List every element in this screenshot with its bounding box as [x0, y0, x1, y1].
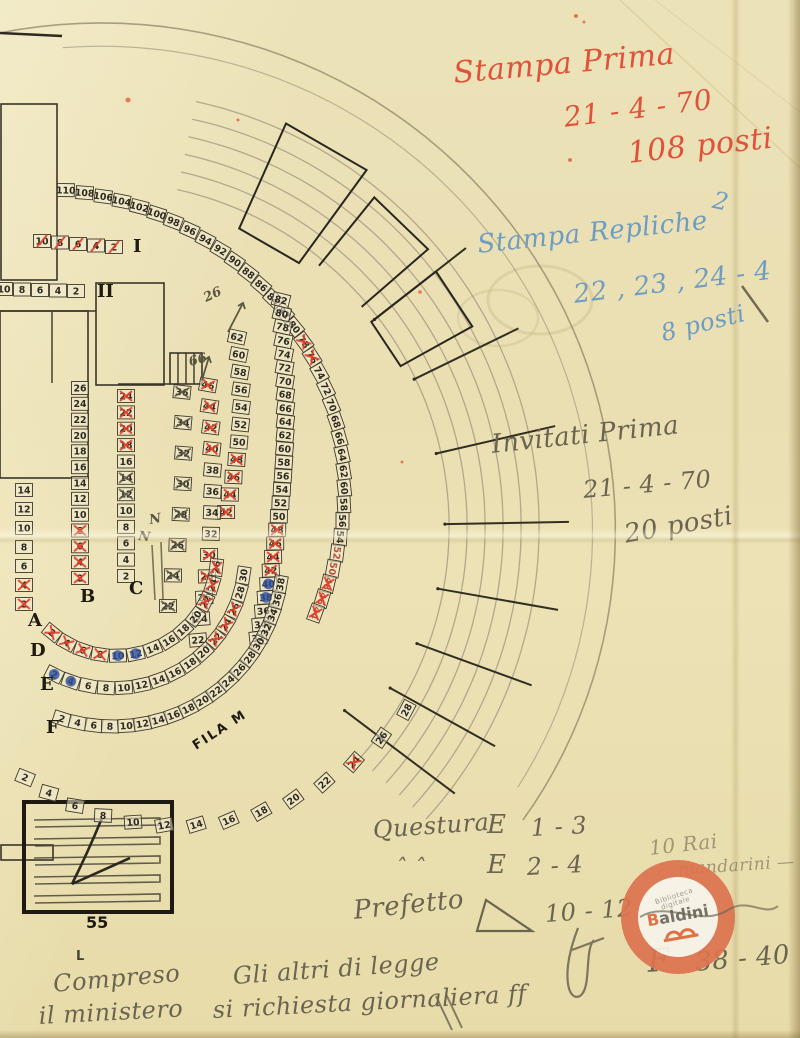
seat: 26	[72, 382, 89, 395]
divider-end-dot	[413, 378, 416, 381]
row-label: I	[133, 236, 141, 257]
seat: 46	[225, 470, 243, 484]
seat: 8	[97, 681, 115, 695]
gallery-divider-line	[445, 522, 569, 524]
seat: 4	[61, 672, 81, 690]
svg-text:68: 68	[278, 389, 293, 402]
svg-text:64: 64	[278, 416, 293, 429]
seat: 6	[79, 678, 98, 694]
stage-bar	[34, 894, 160, 903]
scanned-seating-plan-document: 55L1101081061041021009896949290888684828…	[0, 0, 800, 1038]
seat: 14	[16, 484, 33, 497]
divider-end-dot	[343, 709, 346, 712]
svg-text:34: 34	[205, 508, 219, 520]
seat: 20	[283, 789, 304, 810]
gallery-section-outline	[239, 124, 366, 264]
row-label: C	[129, 578, 143, 599]
seat: 48	[228, 452, 246, 466]
seat: 44	[200, 399, 219, 414]
seat: 18	[72, 445, 89, 458]
crease-line	[620, 0, 800, 168]
svg-text:10: 10	[0, 284, 11, 295]
seat: 16	[72, 461, 89, 474]
ink-speck	[418, 290, 422, 294]
seat: 8	[14, 283, 31, 296]
seat: 14	[72, 477, 89, 490]
svg-text:12: 12	[135, 718, 150, 731]
svg-text:14: 14	[17, 485, 31, 496]
seat: 54	[232, 399, 250, 414]
svg-text:12: 12	[73, 494, 86, 505]
svg-text:10: 10	[73, 510, 87, 521]
seat: 20	[72, 429, 89, 442]
crease-line	[655, 0, 800, 112]
pencil-scribble-lines	[152, 542, 163, 600]
seat: 22	[160, 600, 177, 613]
seat: 4	[16, 579, 33, 592]
seat: 30	[174, 477, 192, 491]
svg-text:72: 72	[277, 362, 292, 375]
svg-text:58: 58	[233, 366, 248, 379]
svg-text:38: 38	[275, 577, 288, 592]
seat: 52	[272, 496, 289, 510]
pencil-arrow	[228, 303, 243, 332]
seat: 24	[72, 397, 89, 410]
svg-text:52: 52	[330, 546, 342, 560]
seat: 62	[227, 329, 246, 345]
row-label: II	[97, 281, 114, 302]
seat: 62	[336, 462, 352, 481]
seat: 58	[337, 496, 351, 514]
seat: 8	[91, 647, 110, 662]
svg-text:108: 108	[74, 187, 94, 199]
seat: 4	[88, 239, 105, 252]
svg-text:10: 10	[117, 683, 131, 695]
svg-text:60: 60	[278, 444, 292, 456]
seat: 44	[307, 603, 325, 623]
seat: 10	[117, 719, 135, 733]
svg-text:14: 14	[73, 478, 87, 489]
stage-number: 55	[86, 913, 108, 932]
seat: 68	[276, 387, 295, 402]
svg-text:10: 10	[119, 721, 133, 733]
seat: 22	[314, 772, 335, 793]
svg-text:26: 26	[73, 383, 87, 394]
seat: 2	[16, 598, 33, 611]
seat: 6	[16, 560, 33, 573]
seat: 24	[164, 569, 181, 582]
seat: 12	[16, 503, 33, 516]
svg-text:54: 54	[234, 402, 249, 415]
water-stain	[488, 266, 592, 334]
seat: 12	[132, 677, 151, 693]
ink-speck	[237, 119, 240, 122]
gallery-divider-line	[345, 711, 455, 794]
svg-text:58: 58	[337, 498, 349, 512]
seat: 8	[52, 236, 69, 249]
svg-text:50: 50	[325, 561, 338, 576]
seat: 28	[231, 582, 248, 602]
row-label: E	[40, 674, 54, 695]
seat: 56	[232, 382, 251, 397]
seat: 10	[115, 681, 133, 695]
svg-text:62: 62	[336, 464, 349, 479]
seat: 16	[118, 455, 135, 468]
svg-text:50: 50	[232, 437, 246, 449]
seat: 44	[221, 488, 238, 501]
seat: 108	[74, 185, 94, 199]
seat: 42	[202, 420, 221, 435]
divider-end-dot	[436, 587, 439, 590]
seat: 12	[155, 817, 174, 833]
svg-text:4: 4	[123, 555, 130, 566]
svg-text:8: 8	[107, 722, 114, 733]
svg-text:36: 36	[206, 486, 220, 498]
ink-speck	[574, 14, 578, 18]
svg-text:6: 6	[21, 561, 28, 572]
seat: 50	[270, 510, 287, 523]
svg-text:8: 8	[21, 542, 28, 553]
seat: 4	[50, 284, 67, 297]
seat: 34	[203, 506, 221, 520]
svg-text:52: 52	[233, 419, 247, 431]
seat: 60	[276, 441, 294, 455]
svg-text:56: 56	[234, 384, 249, 397]
seat: 6	[70, 238, 87, 251]
row-label: A	[27, 610, 43, 631]
divider-end-dot	[435, 452, 438, 455]
svg-text:30: 30	[238, 568, 251, 583]
seat: 4	[118, 553, 135, 566]
seat: 28	[172, 507, 190, 521]
seat: 38	[273, 575, 289, 594]
seat: 10	[72, 508, 89, 521]
svg-text:60: 60	[337, 481, 349, 496]
svg-text:24: 24	[73, 399, 87, 410]
seat: 56	[274, 469, 292, 483]
seat: 12	[72, 492, 89, 505]
svg-text:12: 12	[157, 820, 172, 833]
seat: 12	[126, 646, 145, 662]
seat: 36	[204, 484, 222, 498]
seat: 34	[174, 415, 192, 429]
wall-line	[0, 33, 62, 36]
seat: 16	[218, 811, 239, 830]
seat: 22	[118, 406, 135, 419]
seat: 6	[32, 284, 49, 297]
svg-text:18: 18	[73, 447, 86, 458]
seat: 66	[276, 401, 295, 416]
seat: 10	[34, 235, 51, 248]
svg-text:20: 20	[73, 431, 87, 442]
seat: 4	[72, 556, 89, 569]
svg-text:66: 66	[278, 403, 293, 416]
seat: 56	[336, 512, 349, 529]
seat: 58	[275, 455, 293, 469]
row-label: F	[46, 717, 59, 738]
svg-text:12: 12	[17, 504, 30, 515]
stage-scribble	[72, 818, 130, 884]
seat: 2	[106, 241, 123, 254]
divider-end-dot	[389, 686, 392, 689]
seat: 60	[229, 347, 248, 363]
page-bottom-edge-shadow	[0, 1030, 800, 1038]
seat: 2	[72, 572, 89, 585]
svg-text:38: 38	[205, 465, 219, 477]
seat: 18	[251, 802, 272, 822]
seat: 26	[371, 727, 391, 748]
divider-end-dot	[415, 642, 418, 645]
seat: 36	[173, 385, 191, 400]
ink-speck	[401, 461, 404, 464]
seat: 70	[276, 373, 295, 389]
seat: 2	[68, 285, 85, 298]
pencil-marker: N	[147, 511, 163, 528]
floorplan-room	[1, 104, 57, 280]
seat: 26	[209, 558, 224, 576]
seat: 64	[276, 414, 294, 429]
svg-text:52: 52	[274, 498, 287, 509]
svg-text:62: 62	[278, 430, 292, 442]
svg-text:70: 70	[278, 376, 293, 389]
svg-text:8: 8	[102, 683, 109, 694]
svg-text:8: 8	[19, 285, 26, 296]
stamp-inner-circle: Biblioteca digitale Baldini	[632, 871, 725, 964]
svg-text:56: 56	[336, 514, 347, 528]
horizontal-fold-crease	[0, 528, 800, 544]
svg-text:50: 50	[272, 512, 286, 523]
stage-bar	[34, 875, 160, 884]
svg-text:10: 10	[119, 506, 133, 517]
svg-text:58: 58	[277, 457, 291, 469]
seat: 22	[72, 413, 89, 426]
seat: 24	[343, 751, 364, 772]
seat: 14	[186, 816, 206, 833]
seat: 62	[276, 428, 294, 443]
seat: 14	[118, 471, 135, 484]
seat: 6	[73, 641, 93, 659]
seat: 38	[203, 463, 221, 477]
svg-text:110: 110	[56, 185, 76, 196]
seat: 10	[0, 283, 13, 296]
svg-text:16: 16	[119, 457, 133, 468]
row-label: D	[30, 640, 46, 661]
seat: 24	[118, 390, 135, 403]
svg-text:10: 10	[126, 817, 140, 829]
fila-m-label: FILA M	[190, 707, 250, 753]
seat: 50	[230, 435, 248, 449]
svg-text:56: 56	[276, 471, 290, 483]
row-label: B	[80, 586, 95, 607]
svg-text:54: 54	[275, 484, 289, 496]
corner-mark: L	[76, 949, 84, 964]
seat: 110	[56, 183, 76, 196]
svg-text:6: 6	[37, 285, 44, 296]
baldini-library-stamp: Biblioteca digitale Baldini	[621, 860, 735, 974]
ink-speck	[568, 158, 572, 162]
ink-speck	[126, 98, 131, 103]
seat: 10	[109, 649, 126, 662]
seat: 6	[66, 798, 85, 814]
svg-text:8: 8	[100, 811, 107, 822]
seat: 52	[231, 417, 249, 432]
svg-text:2: 2	[73, 286, 80, 297]
divider-end-dot	[443, 522, 446, 525]
seat: 64	[334, 445, 350, 464]
seat: 30	[236, 566, 251, 585]
ink-speck	[583, 21, 586, 24]
seat: 20	[118, 422, 135, 435]
page-right-edge-shadow	[788, 0, 800, 1038]
seat: 8	[94, 809, 112, 823]
seat: 12	[118, 488, 135, 501]
seat: 58	[231, 364, 250, 380]
vertical-fold-crease	[731, 0, 740, 1038]
seat: 40	[203, 441, 221, 456]
seat: 10	[124, 815, 142, 829]
pencil-marker: 26	[200, 284, 224, 306]
seat: 2	[15, 768, 36, 786]
seat: 4	[39, 784, 59, 801]
seat: 18	[118, 439, 135, 452]
svg-text:16: 16	[73, 463, 87, 474]
svg-text:22: 22	[73, 415, 86, 426]
seat: 32	[175, 446, 193, 460]
seat: 6	[85, 718, 103, 733]
seat: 8	[101, 720, 118, 733]
seat: 44	[264, 550, 281, 563]
seat: 54	[273, 482, 291, 496]
seat: 10	[118, 504, 135, 517]
svg-text:4: 4	[55, 286, 62, 297]
seat: 60	[337, 479, 352, 497]
